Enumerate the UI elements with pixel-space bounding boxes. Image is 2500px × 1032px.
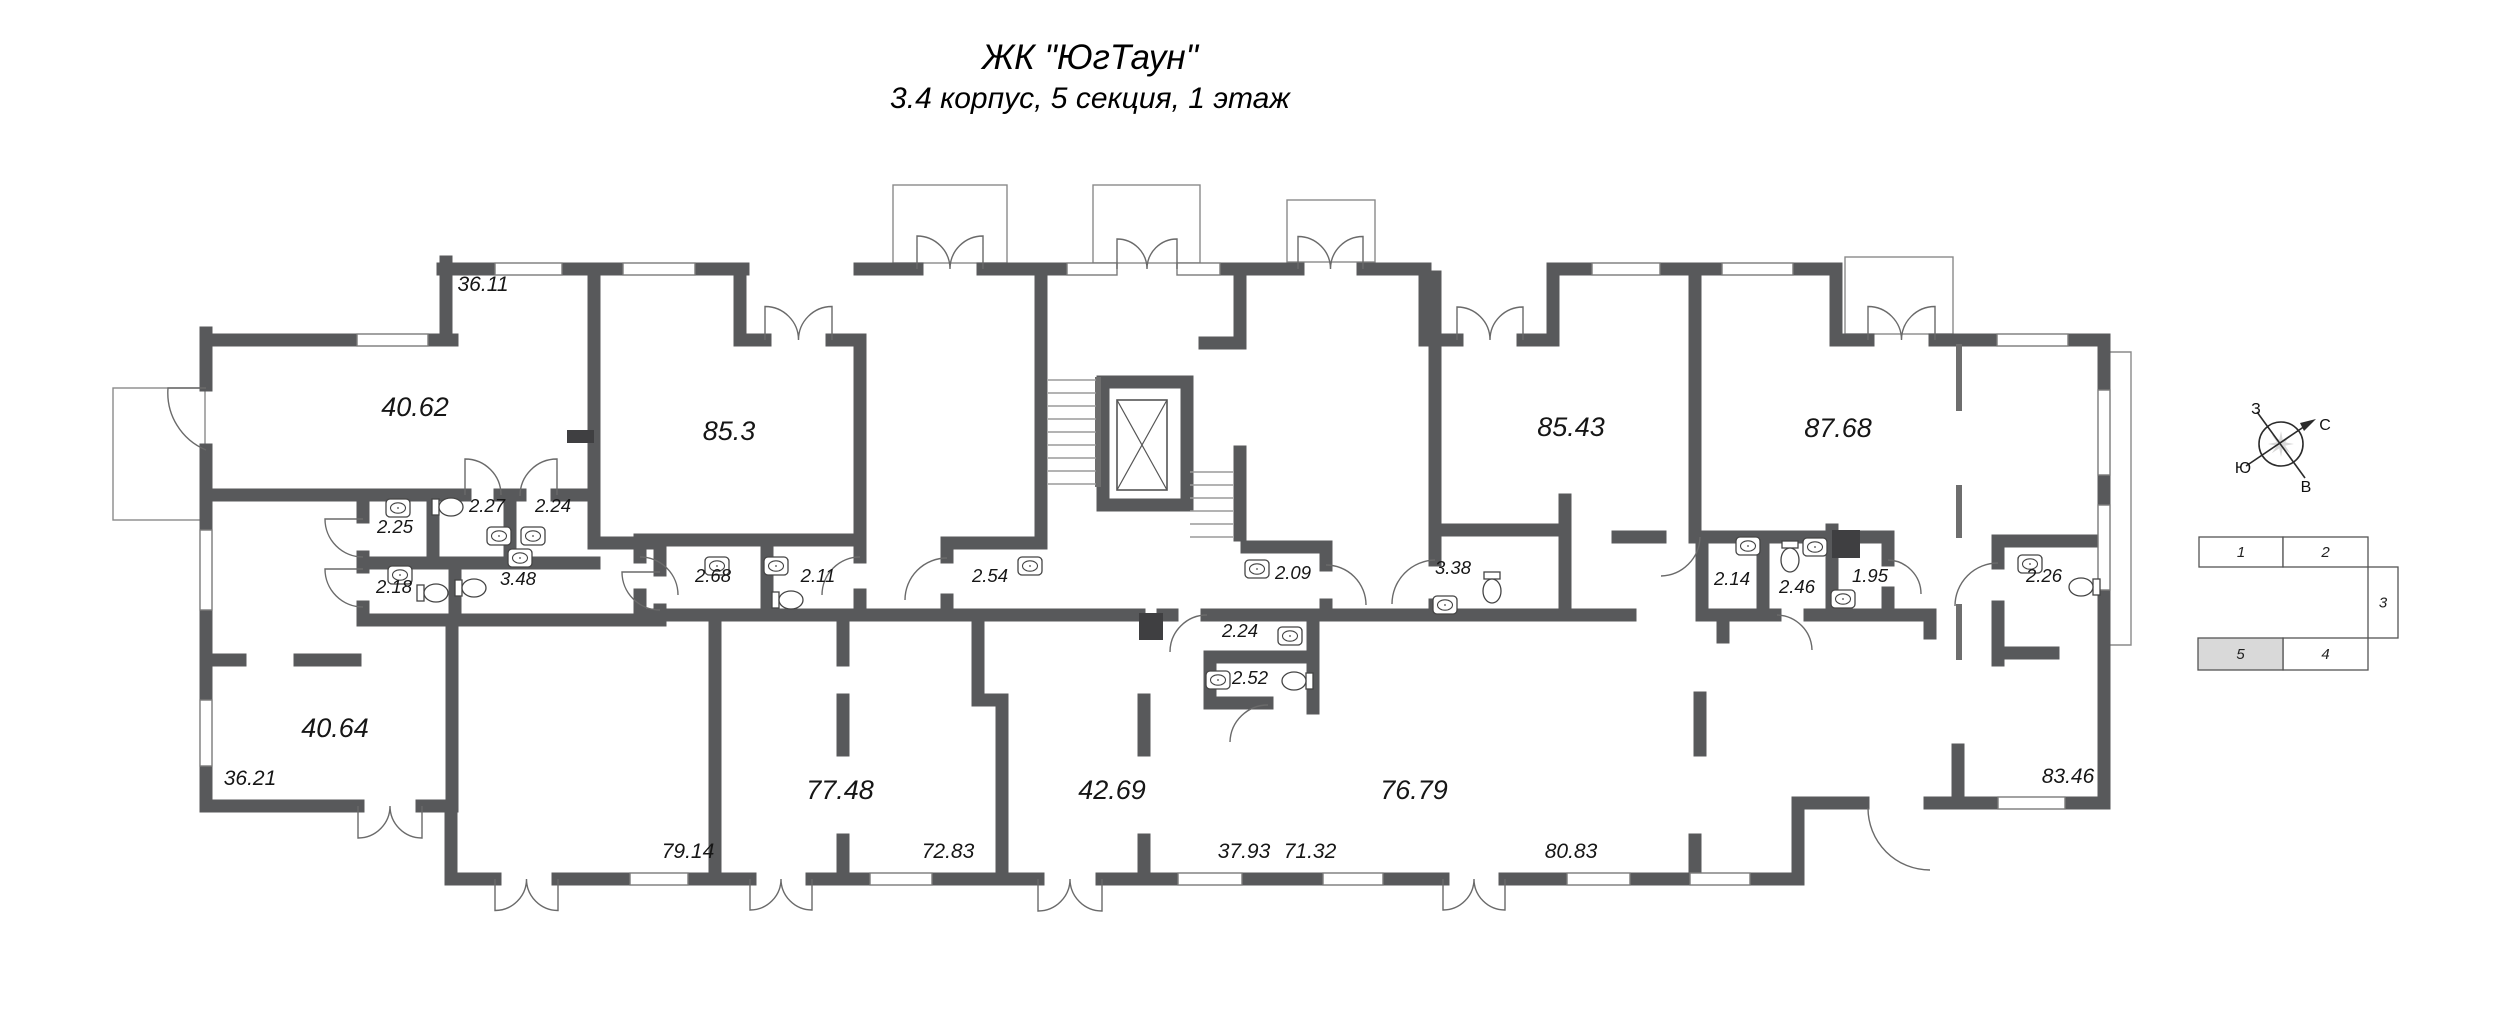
room-area-label: 2.18 [375,576,413,597]
compass-label-north: С [2319,417,2331,434]
section-key-label: 5 [2236,646,2245,663]
section-key-label: 4 [2321,646,2329,663]
room-area-label: 2.11 [800,565,836,586]
room-area-label: 83.46 [2042,765,2095,788]
compass-label-west: З [2251,401,2261,418]
room-area-label: 2.24 [534,495,571,516]
room-area-label: 2.27 [468,495,506,516]
room-area-label: 3.48 [500,568,537,589]
room-area-label: 87.68 [1804,413,1872,443]
room-area-label: 2.14 [1713,568,1750,589]
page-subtitle: 3.4 корпус, 5 секция, 1 этаж [740,80,1440,118]
room-area-label: 40.62 [381,392,449,422]
floor-plan-drawing: 36.1140.6285.385.4387.682.252.272.242.18… [0,0,2500,1032]
room-area-label: 42.69 [1078,775,1146,805]
room-area-label: 71.32 [1284,840,1337,863]
room-area-label: 36.11 [458,273,509,296]
room-area-label: 1.95 [1852,565,1889,586]
room-area-label: 80.83 [1545,840,1598,863]
section-key-label: 2 [2320,544,2330,561]
room-area-label: 37.93 [1218,840,1271,863]
compass-label-south: Ю [2235,460,2251,477]
room-area-label: 2.52 [1231,667,1269,688]
section-key-map: 12345 [2198,537,2398,670]
staircase [1048,380,1233,537]
room-area-label: 72.83 [922,840,975,863]
compass-axis-south-north [2246,424,2308,466]
floorplan-page: ЖК "ЮгТаун" 3.4 корпус, 5 секция, 1 этаж… [0,0,2500,1032]
room-area-label: 3.38 [1435,557,1472,578]
compass-rose: З С Ю В [2235,401,2331,496]
room-area-label: 76.79 [1380,775,1448,805]
section-key-label: 3 [2379,595,2388,612]
room-area-label: 2.46 [1778,576,1816,597]
page-title: ЖК "ЮгТаун" [740,36,1440,80]
room-area-label: 2.68 [694,565,732,586]
compass-label-east: В [2301,479,2312,496]
section-key-label: 1 [2237,544,2245,561]
room-area-label: 79.14 [662,840,715,863]
room-area-label: 85.3 [703,416,756,446]
room-area-label: 2.24 [1221,620,1258,641]
windows [200,263,2110,885]
room-area-label: 2.09 [1274,562,1311,583]
title-block: ЖК "ЮгТаун" 3.4 корпус, 5 секция, 1 этаж [740,36,1440,117]
room-area-label: 2.25 [376,516,414,537]
elevator-shaft [1117,400,1167,490]
room-area-label: 40.64 [301,713,369,743]
compass-north-arrow-icon [2300,419,2316,431]
room-area-labels: 36.1140.6285.385.4387.682.252.272.242.18… [224,273,2095,863]
room-area-label: 2.54 [971,565,1008,586]
room-area-label: 36.21 [224,767,277,790]
walls [206,262,2104,879]
room-area-label: 2.26 [2025,565,2063,586]
room-area-label: 77.48 [806,775,874,805]
room-area-label: 85.43 [1537,412,1605,442]
